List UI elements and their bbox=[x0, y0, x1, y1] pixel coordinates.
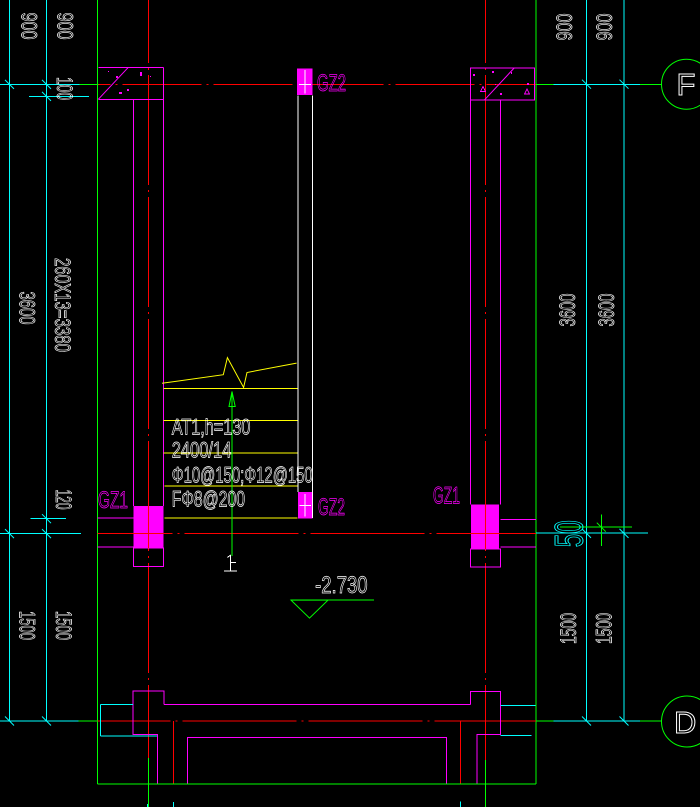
svg-text:900: 900 bbox=[17, 13, 42, 40]
svg-text:900: 900 bbox=[592, 14, 617, 41]
svg-text:GZ2: GZ2 bbox=[318, 494, 345, 521]
svg-text:FΦ8@200: FΦ8@200 bbox=[172, 487, 245, 512]
svg-text:GZ1: GZ1 bbox=[433, 483, 460, 510]
svg-text:1500: 1500 bbox=[556, 613, 581, 644]
svg-text:GZ1: GZ1 bbox=[98, 487, 128, 514]
svg-text:AT1,h=130: AT1,h=130 bbox=[172, 415, 251, 440]
svg-text:Φ10@150;Φ12@150: Φ10@150;Φ12@150 bbox=[172, 463, 313, 488]
svg-text:900: 900 bbox=[53, 13, 78, 40]
svg-text:F: F bbox=[677, 67, 696, 102]
svg-text:100: 100 bbox=[52, 77, 77, 100]
svg-text:900: 900 bbox=[552, 14, 577, 41]
svg-text:2400/14: 2400/14 bbox=[172, 438, 232, 463]
svg-text:GZ2: GZ2 bbox=[317, 70, 346, 97]
svg-text:3600: 3600 bbox=[594, 294, 619, 327]
svg-text:D: D bbox=[674, 705, 696, 740]
svg-text:120: 120 bbox=[51, 490, 76, 510]
svg-text:1500: 1500 bbox=[592, 613, 617, 644]
svg-text:1500: 1500 bbox=[15, 611, 40, 640]
svg-text:260X13=3380: 260X13=3380 bbox=[50, 258, 75, 352]
svg-text:1500: 1500 bbox=[51, 611, 76, 640]
svg-text:50: 50 bbox=[548, 520, 592, 547]
svg-text:3600: 3600 bbox=[555, 294, 580, 327]
svg-text:-2.730: -2.730 bbox=[315, 572, 368, 599]
svg-text:3600: 3600 bbox=[15, 292, 40, 325]
